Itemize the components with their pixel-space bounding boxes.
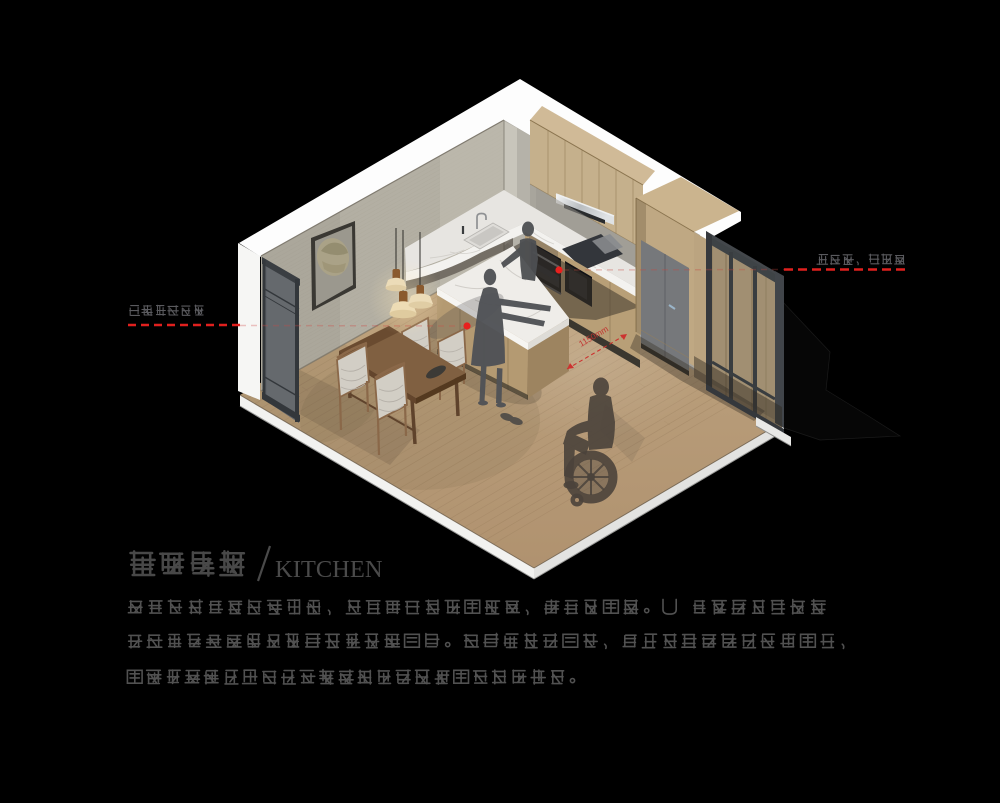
svg-text:KITCHEN: KITCHEN	[275, 556, 383, 583]
